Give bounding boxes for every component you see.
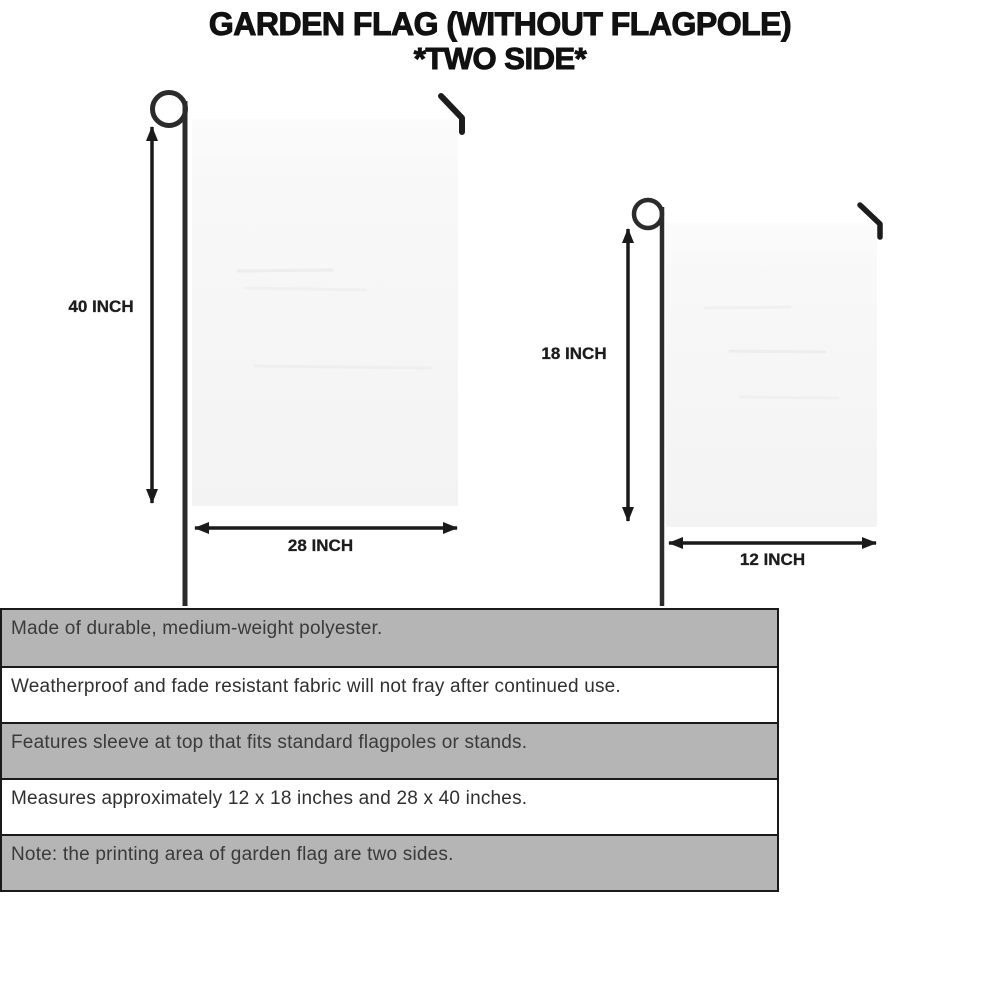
- feature-row-note: Note: the printing area of garden flag a…: [2, 834, 777, 890]
- small-flag-height-label: 18 INCH: [530, 344, 618, 364]
- small-flag-width-label: 12 INCH: [710, 550, 835, 570]
- small-flag-canvas: [666, 223, 877, 527]
- large-flag-height-label: 40 INCH: [56, 297, 146, 317]
- large-flag-canvas: [192, 119, 458, 506]
- feature-row-measures: Measures approximately 12 x 18 inches an…: [2, 778, 777, 834]
- large-pole-loop: [153, 93, 186, 126]
- large-flag-diagram: [152, 93, 462, 607]
- feature-row-sleeve: Features sleeve at top that fits standar…: [2, 722, 777, 778]
- small-flag-diagram: [628, 200, 880, 606]
- small-pole-loop: [634, 200, 662, 228]
- product-spec-infographic: { "title": { "line1": "GARDEN FLAG (WITH…: [0, 0, 1000, 1000]
- feature-row-material: Made of durable, medium-weight polyester…: [2, 610, 777, 666]
- feature-table: Made of durable, medium-weight polyester…: [0, 608, 779, 892]
- large-flag-width-label: 28 INCH: [258, 536, 383, 556]
- feature-row-weatherproof: Weatherproof and fade resistant fabric w…: [2, 666, 777, 722]
